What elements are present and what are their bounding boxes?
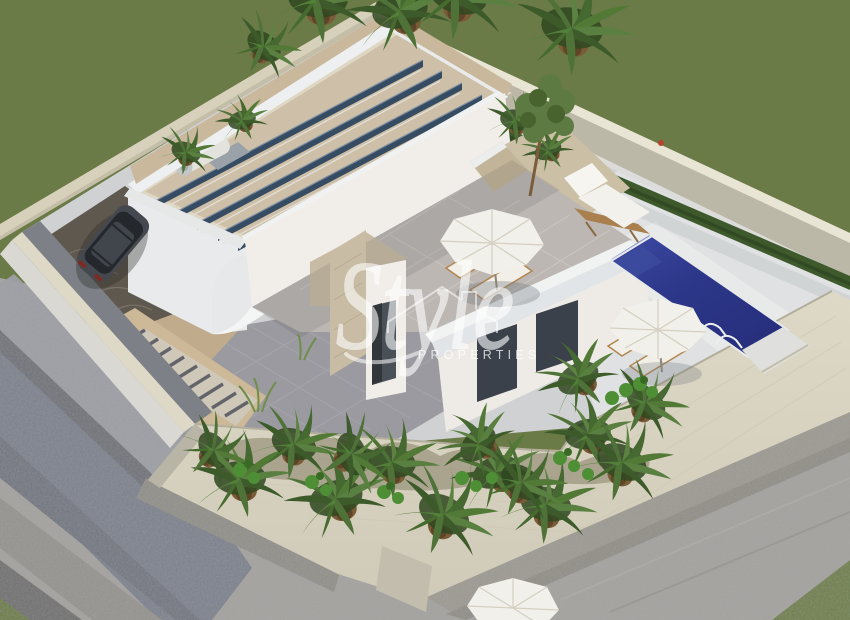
svg-text:PROPERTIES: PROPERTIES [418, 348, 540, 362]
